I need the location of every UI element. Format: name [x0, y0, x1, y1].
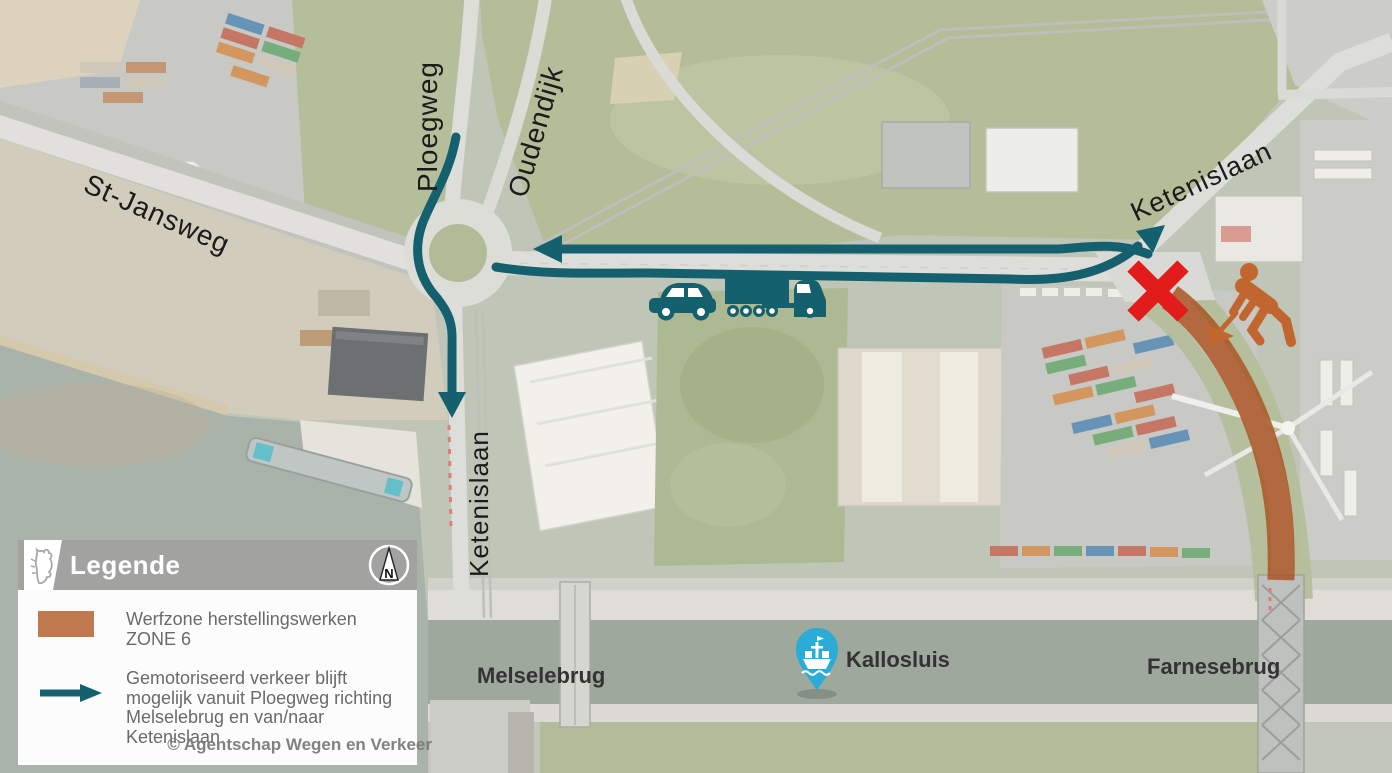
copyright-credit: © Agentschap Wegen en Verkeer [0, 735, 432, 755]
traffic-arrow-icon [38, 683, 104, 703]
truck-icon [725, 276, 826, 318]
legend-item-workzone: Werfzone herstellingswerken ZONE 6 [38, 610, 403, 649]
traffic-plan-map: St-Jansweg Ploegweg Oudendijk Ketenislaa… [0, 0, 1392, 773]
flanders-lion-logo [24, 540, 64, 590]
route-westbound [560, 246, 1148, 254]
north-label: N [384, 566, 393, 581]
legend-header: Legende N [18, 540, 417, 590]
north-compass-icon: N [366, 542, 412, 588]
workzone-label: Werfzone herstellingswerken ZONE 6 [126, 610, 394, 649]
workzone-swatch [38, 611, 96, 637]
legend-title: Legende [70, 550, 180, 581]
legend-panel: Legende N Werfzone herstellingswerken ZO… [18, 540, 417, 765]
